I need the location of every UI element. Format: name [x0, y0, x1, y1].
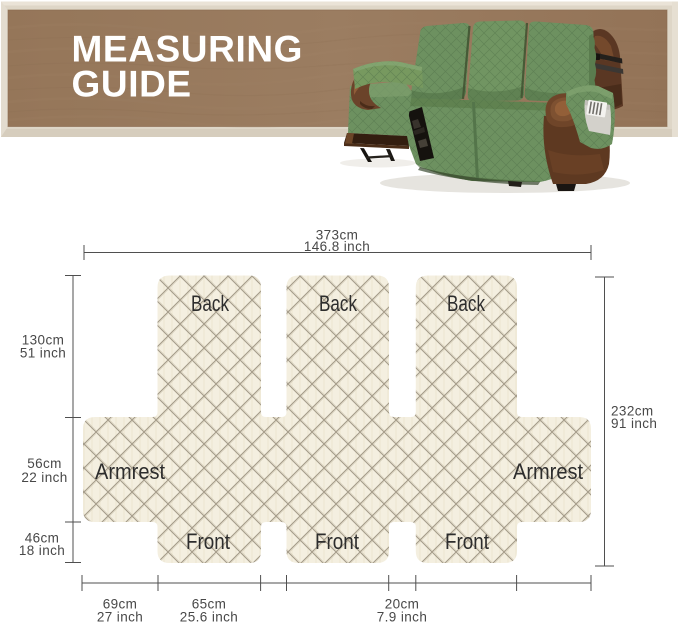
svg-text:91 inch: 91 inch [611, 416, 657, 431]
svg-text:Armrest: Armrest [513, 459, 583, 484]
svg-text:25.6 inch: 25.6 inch [180, 610, 238, 623]
svg-text:Front: Front [315, 529, 359, 554]
svg-text:56cm: 56cm [27, 456, 62, 471]
svg-text:22 inch: 22 inch [21, 470, 67, 485]
svg-text:51 inch: 51 inch [20, 346, 66, 361]
svg-text:7.9 inch: 7.9 inch [377, 610, 427, 623]
svg-text:Back: Back [191, 291, 230, 316]
svg-text:Front: Front [445, 529, 489, 554]
svg-text:Armrest: Armrest [95, 459, 165, 484]
svg-text:18 inch: 18 inch [19, 543, 65, 558]
svg-text:27 inch: 27 inch [97, 610, 143, 623]
svg-text:146.8 inch: 146.8 inch [304, 239, 370, 254]
svg-text:Front: Front [186, 529, 230, 554]
svg-text:Back: Back [319, 291, 358, 316]
svg-text:Back: Back [447, 291, 486, 316]
svg-text:GUIDE: GUIDE [72, 64, 192, 105]
